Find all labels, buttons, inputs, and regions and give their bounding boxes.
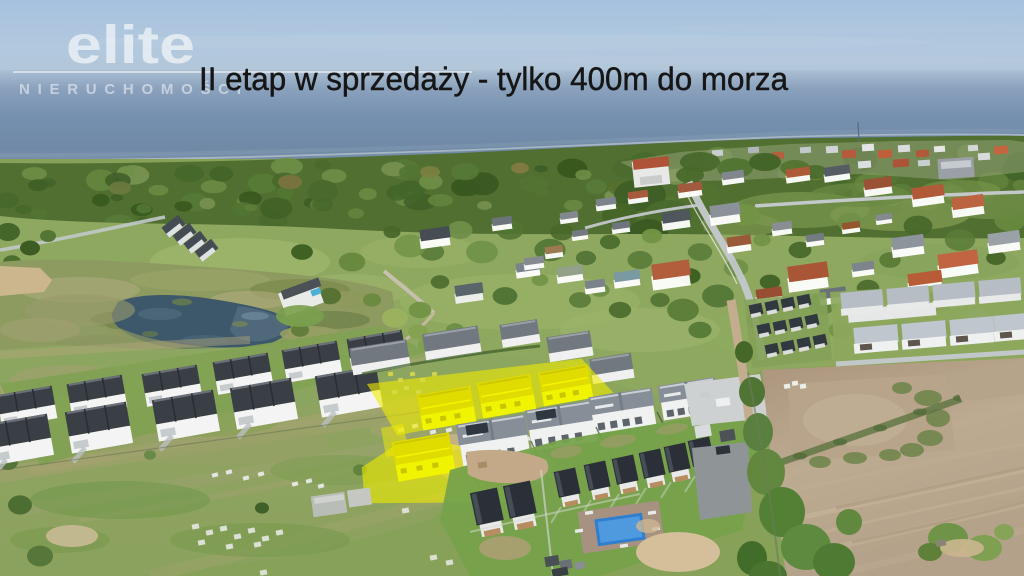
svg-text:elite: elite — [66, 15, 195, 75]
svg-text:II etap w sprzedaży - tylko 40: II etap w sprzedaży - tylko 400m do morz… — [199, 61, 788, 97]
